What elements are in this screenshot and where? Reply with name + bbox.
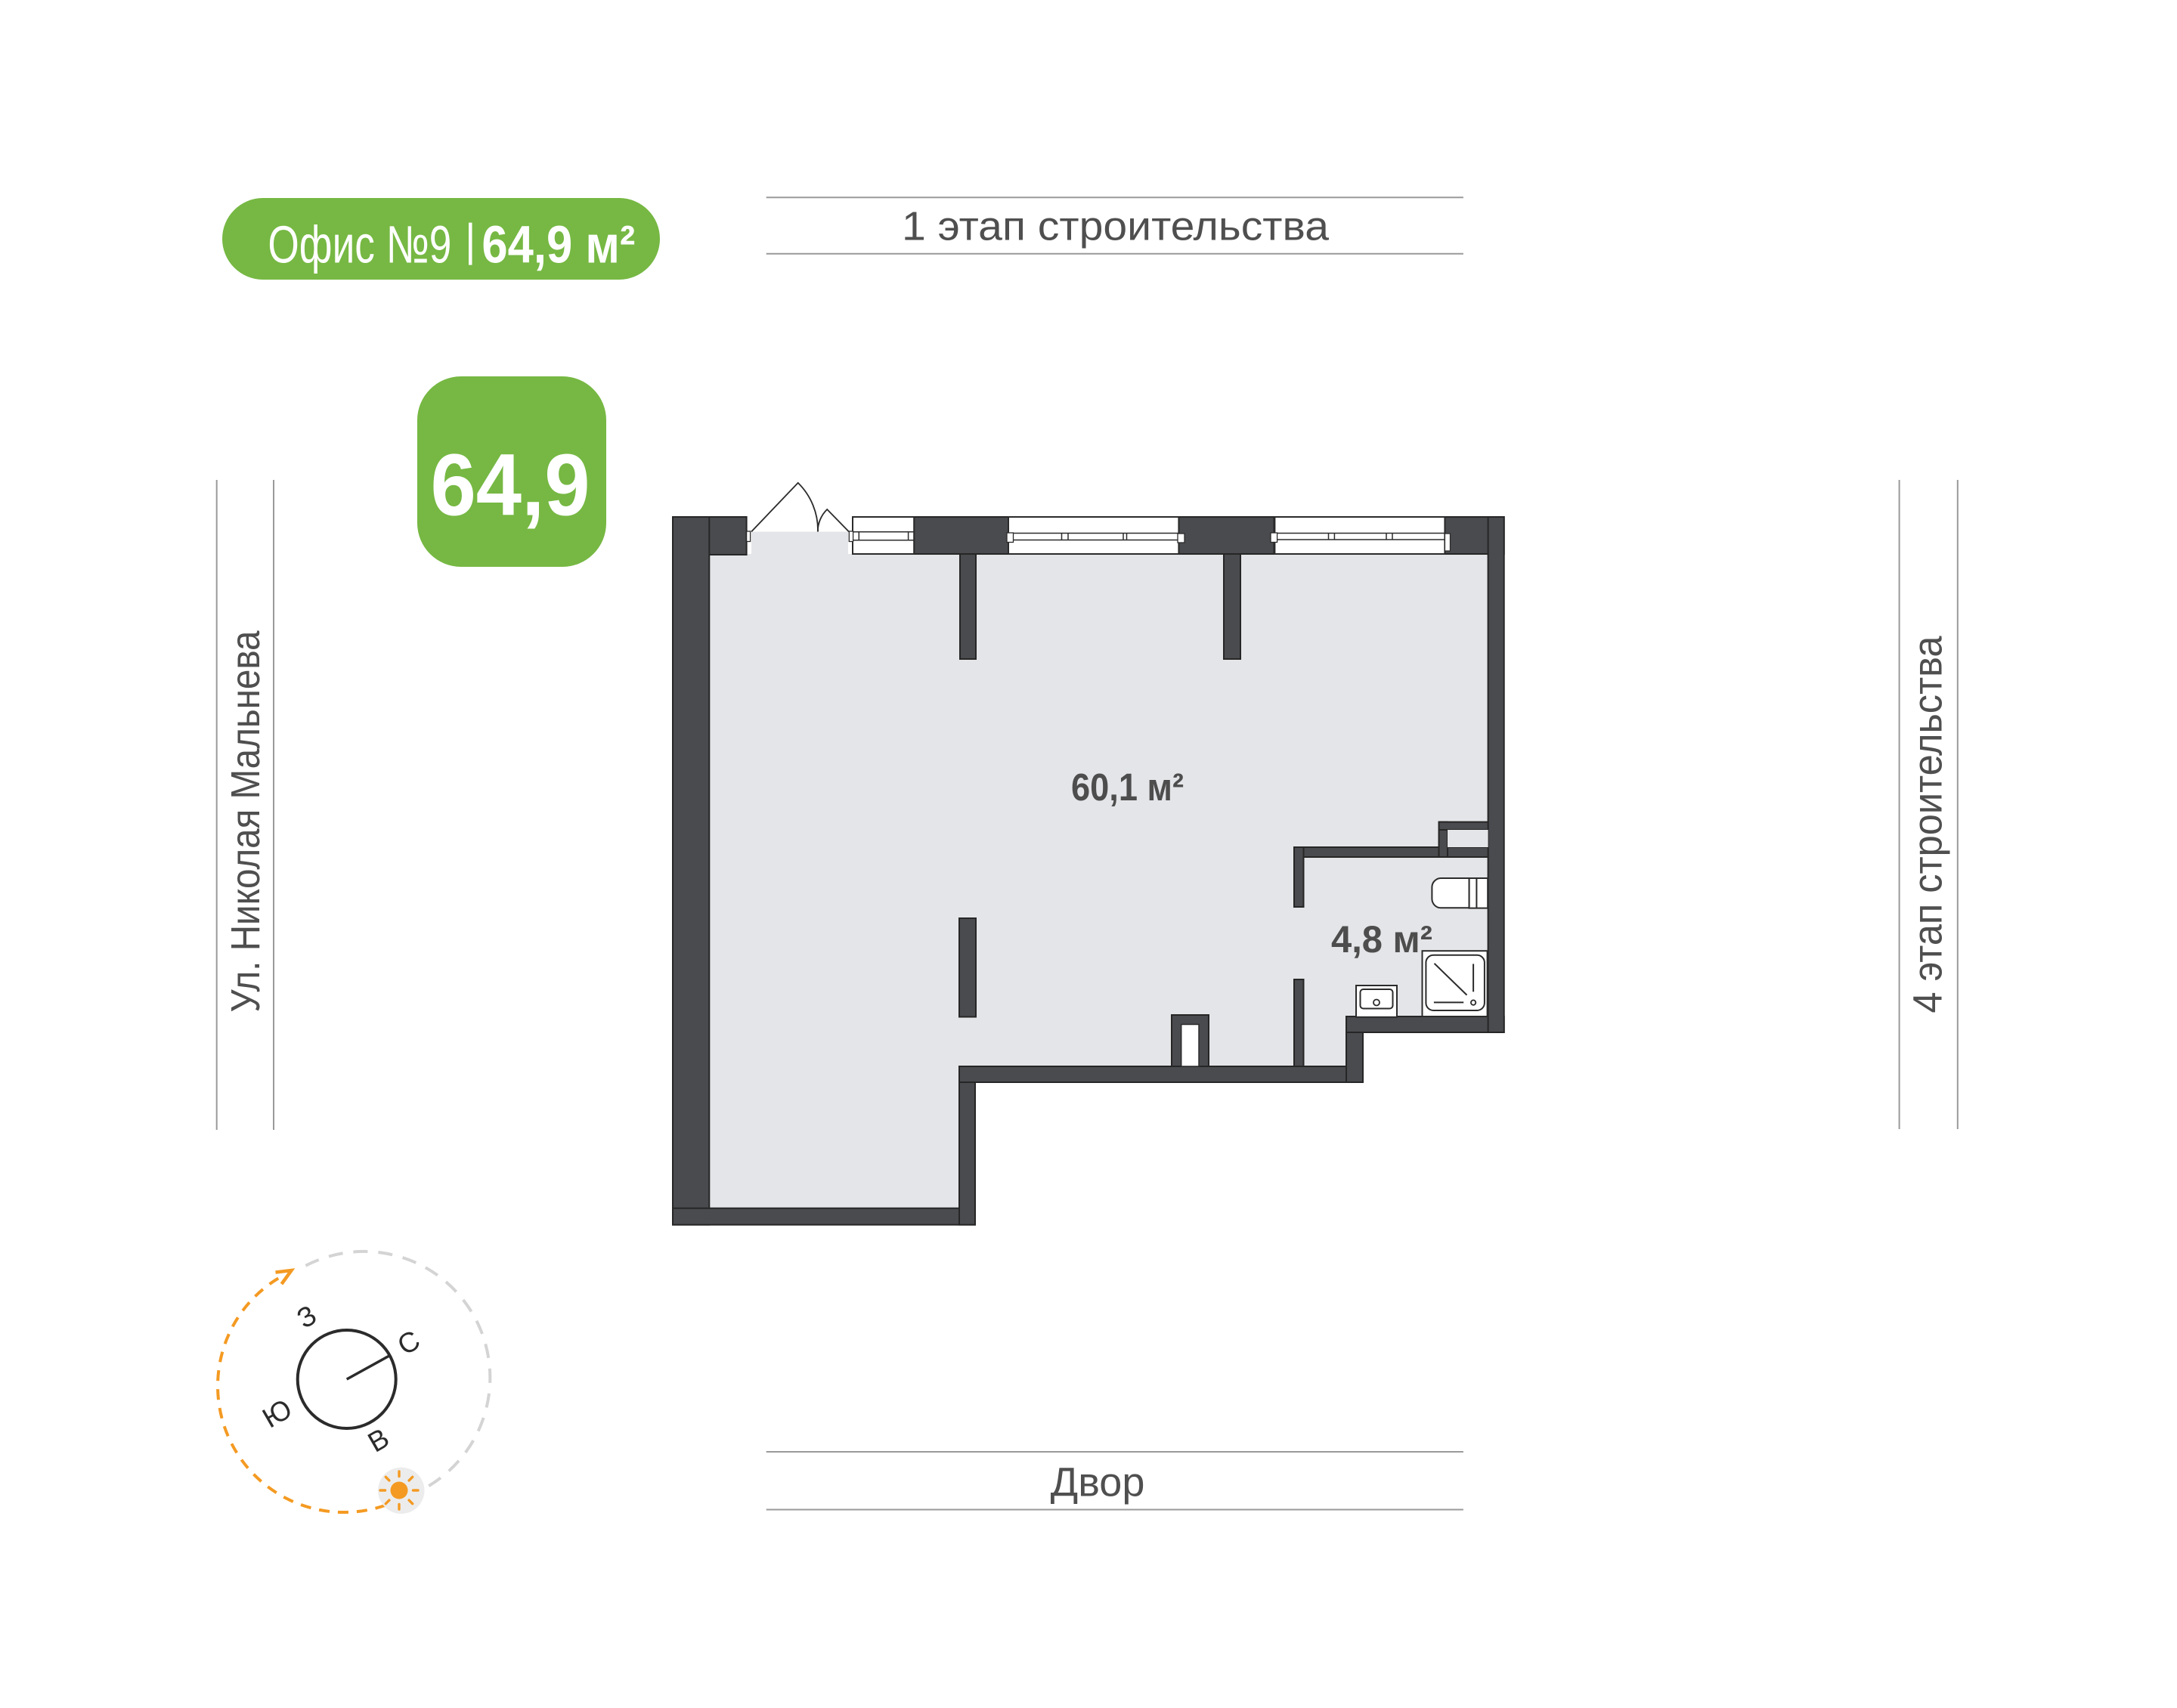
svg-text:4,8 м²: 4,8 м² (1331, 918, 1432, 961)
svg-text:60,1 м²: 60,1 м² (1071, 766, 1184, 809)
svg-text:1 этап строительства: 1 этап строительства (902, 204, 1330, 249)
svg-text:Двор: Двор (1051, 1460, 1145, 1505)
svg-text:64,9 м²: 64,9 м² (482, 215, 635, 274)
svg-text:Ул. Николая Мальнева: Ул. Николая Мальнева (223, 630, 268, 1013)
svg-text:64,9: 64,9 (431, 436, 590, 534)
svg-text:Офис №9: Офис №9 (268, 215, 451, 274)
svg-text:4 этап строительства: 4 этап строительства (1906, 636, 1951, 1013)
